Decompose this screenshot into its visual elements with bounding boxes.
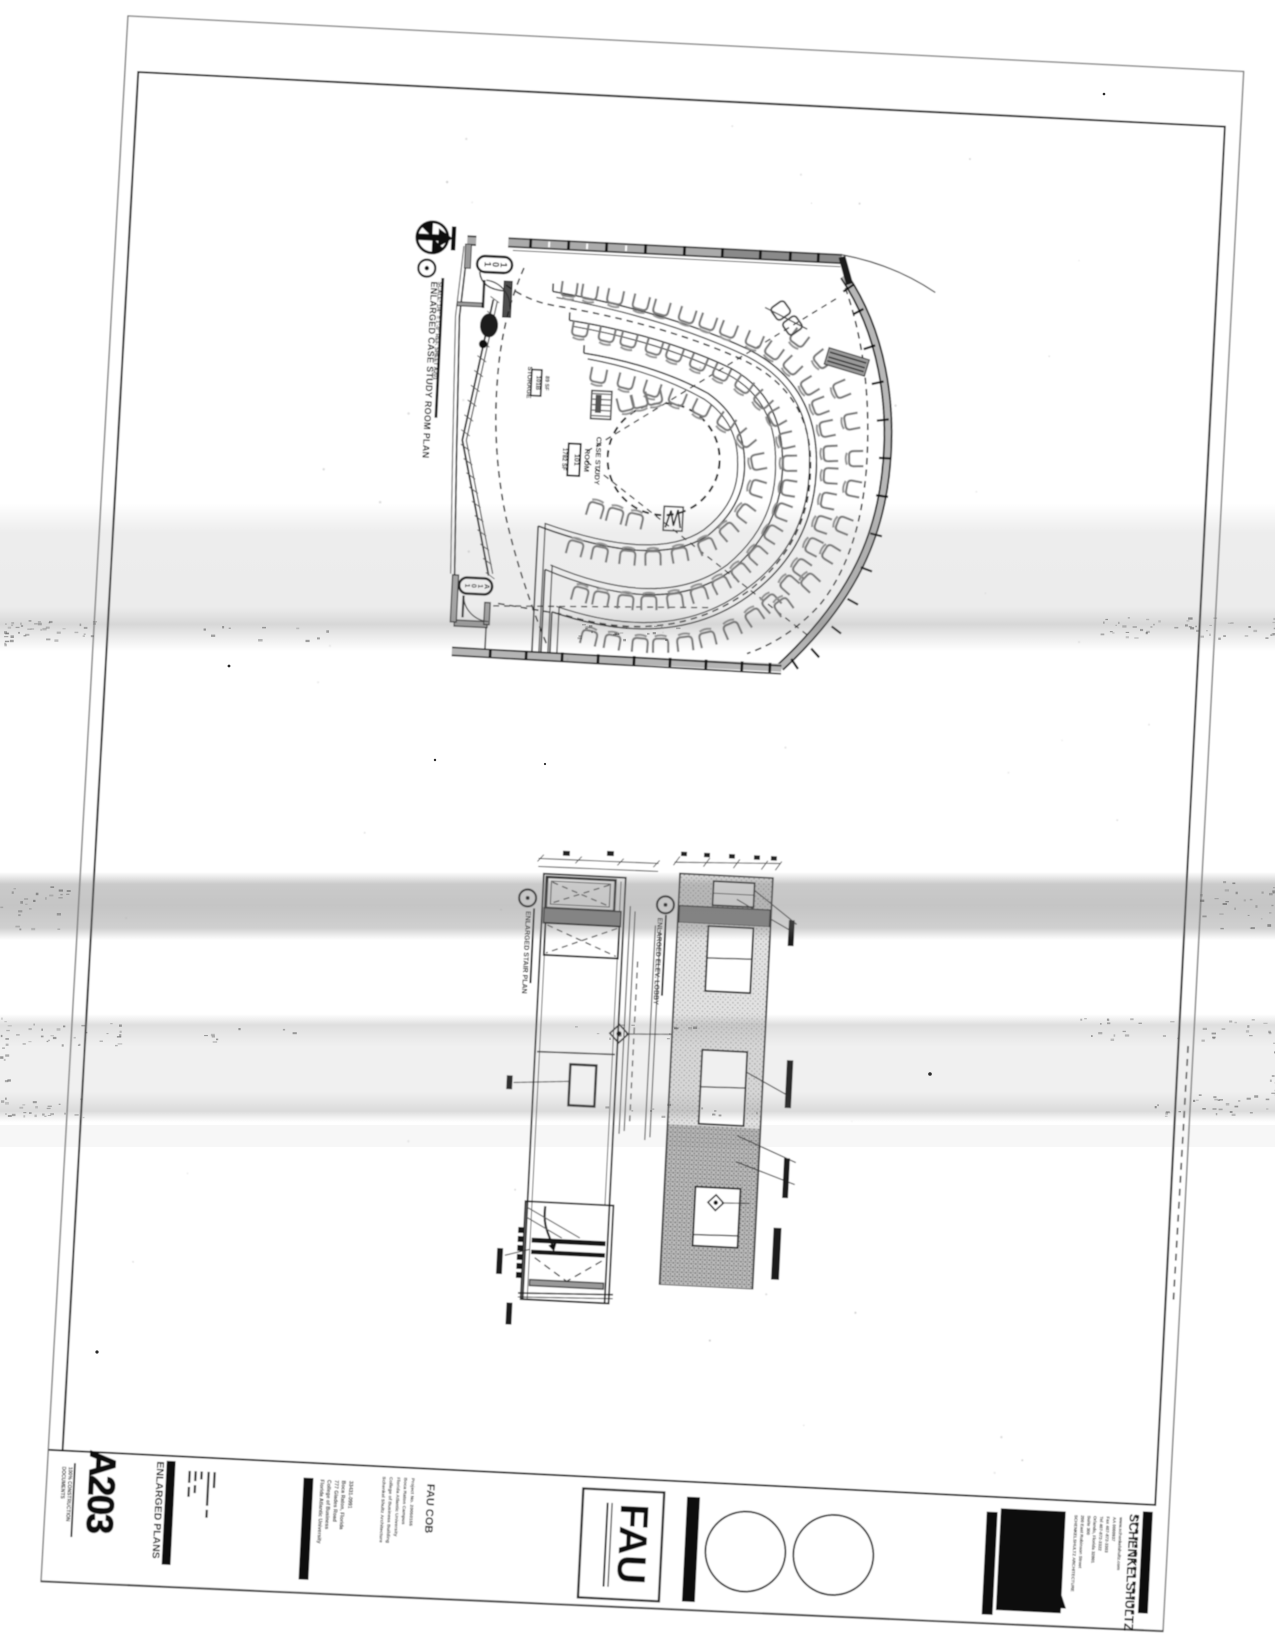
svg-text:89 SF: 89 SF (543, 376, 550, 392)
svg-text:1782 SF: 1782 SF (560, 448, 567, 471)
svg-text:ROOM: ROOM (582, 448, 592, 472)
svg-text:101: 101 (572, 454, 580, 466)
svg-text:1: 1 (499, 262, 509, 268)
svg-text:FAU: FAU (608, 1503, 656, 1585)
svg-text:A203: A203 (79, 1449, 124, 1534)
svg-text:FAU COB: FAU COB (422, 1484, 436, 1534)
svg-text:Suite 300: Suite 300 (1085, 1516, 1091, 1536)
svg-text:101B: 101B (534, 375, 541, 390)
